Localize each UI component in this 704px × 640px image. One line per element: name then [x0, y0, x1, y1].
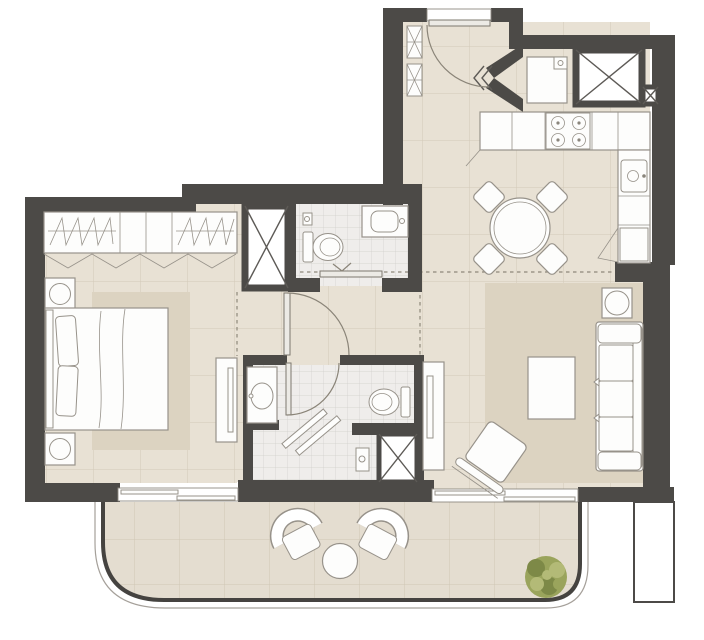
- exterior-wall-outline: [634, 502, 674, 602]
- headboard: [46, 310, 53, 428]
- bedroom-dresser: [216, 358, 237, 442]
- hall-left-wall: [383, 8, 403, 205]
- tv-console: [423, 362, 444, 470]
- top-step-wall: [509, 8, 523, 37]
- floor-plan-page: [0, 0, 704, 640]
- sofa-cushion: [599, 417, 633, 451]
- lamp-icon: [50, 439, 71, 460]
- kitchen-sink-icon: [621, 160, 647, 192]
- sofa-armrest: [598, 324, 641, 343]
- double-bed: [45, 308, 168, 430]
- side-table-icon: [602, 288, 632, 318]
- appliance-unit: [620, 228, 648, 261]
- vanity-basin-icon: [247, 367, 277, 423]
- shower-column-icon: [356, 448, 369, 471]
- guest-bath-bottom-wall-a: [288, 278, 320, 292]
- washbasin-icon: [362, 206, 408, 237]
- living-bottom-corner-wall: [578, 487, 674, 502]
- guest-bath-bottom-wall-b: [382, 278, 422, 292]
- sofa-cushion: [599, 345, 633, 381]
- utility-shaft-kitchen-small: [643, 87, 658, 104]
- sofa-back: [633, 326, 642, 468]
- living-sliding-door: [432, 489, 578, 502]
- right-wall-lower: [643, 262, 670, 502]
- dining-table: [490, 198, 550, 258]
- refrigerator-icon: [527, 57, 567, 103]
- utility-shaft-ensuite: [379, 434, 417, 482]
- nightstand-top: [45, 278, 75, 310]
- utility-shaft-kitchen: [576, 50, 642, 104]
- floor-plan-canvas: [0, 0, 704, 640]
- entry-threshold: [427, 9, 491, 21]
- sofa-armrest: [598, 452, 641, 470]
- lamp-icon: [50, 284, 71, 305]
- duct-box-upper: [407, 26, 422, 58]
- sofa: [594, 322, 643, 471]
- bistro-table: [323, 544, 358, 579]
- right-wall-upper: [652, 35, 675, 265]
- pillow-icon: [56, 366, 79, 417]
- hob-4-burners-icon: [546, 113, 590, 149]
- plant-icon: [525, 556, 567, 598]
- utility-shaft-hall: [245, 206, 288, 288]
- toilet-icon: [369, 387, 410, 417]
- tv-icon: [427, 376, 433, 438]
- nightstand-bottom: [45, 433, 75, 465]
- ensuite-top-wall-b: [340, 355, 414, 365]
- balcony-left-stub: [100, 488, 120, 502]
- coffee-table: [528, 357, 575, 419]
- pillow-icon: [55, 315, 78, 366]
- duct-box-lower: [407, 64, 422, 96]
- left-wall: [25, 197, 45, 502]
- sofa-cushion: [599, 381, 633, 417]
- right-wall-stub: [615, 262, 652, 282]
- bedroom-sliding-door: [118, 488, 238, 501]
